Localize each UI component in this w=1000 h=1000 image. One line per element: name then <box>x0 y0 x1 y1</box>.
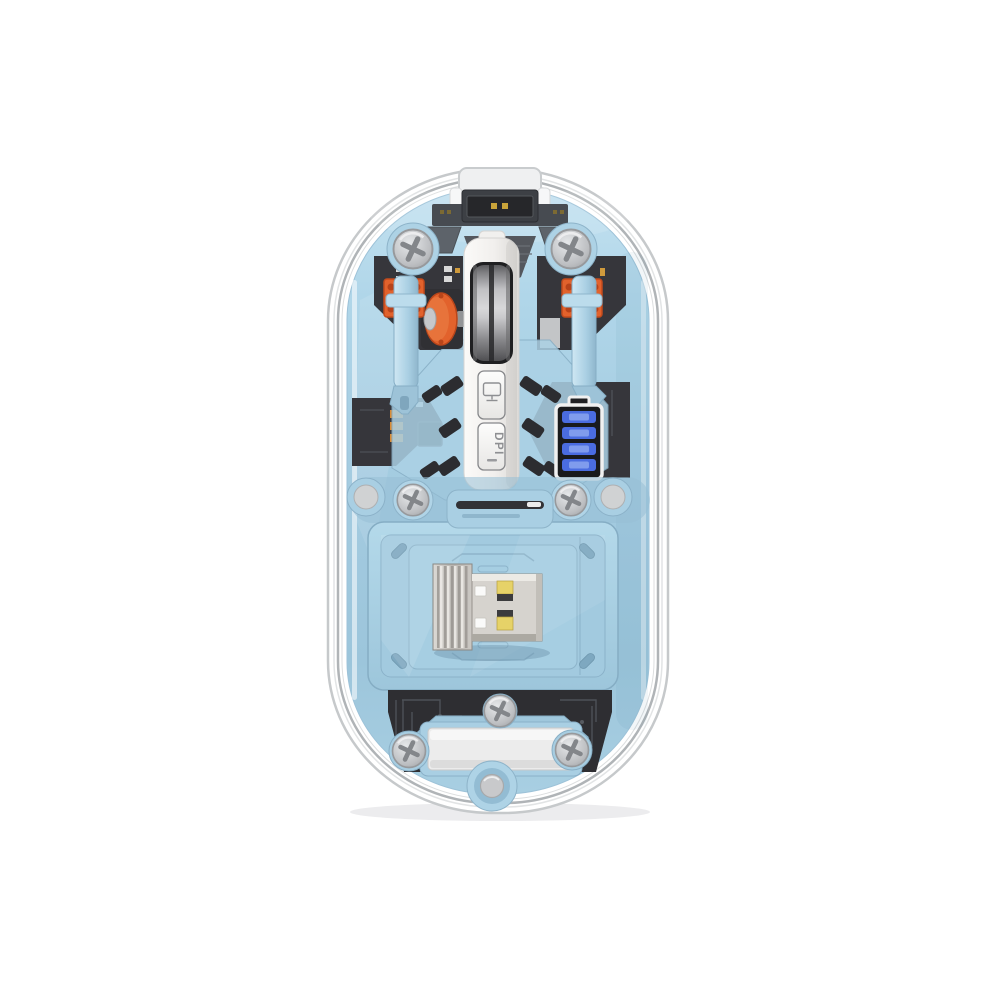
left-post <box>354 485 378 509</box>
mouse-illustration: DPI <box>0 0 1000 1000</box>
battery-cell-glow <box>569 414 589 421</box>
wheel-encoder <box>421 289 468 349</box>
battery-cell-glow <box>569 430 589 437</box>
left-clip <box>394 276 418 388</box>
bottom-round-button <box>467 761 517 811</box>
housing-bracket <box>447 490 553 528</box>
dongle-cap <box>433 564 472 650</box>
dpi-button-label: DPI <box>492 432 504 456</box>
dpi-button: DPI <box>478 423 505 470</box>
product-photo: DPI <box>0 0 1000 1000</box>
right-post <box>601 485 625 509</box>
port-contact <box>502 203 508 209</box>
port-contact <box>491 203 497 209</box>
usb-a-connector <box>472 574 542 641</box>
scroll-wheel <box>473 265 510 361</box>
battery-cell-glow <box>569 446 589 453</box>
center-housing: DPI <box>464 231 519 490</box>
battery-cell-glow <box>569 462 589 469</box>
display-mode-button <box>478 371 505 419</box>
right-clip <box>572 276 596 388</box>
battery-indicator <box>556 397 602 479</box>
